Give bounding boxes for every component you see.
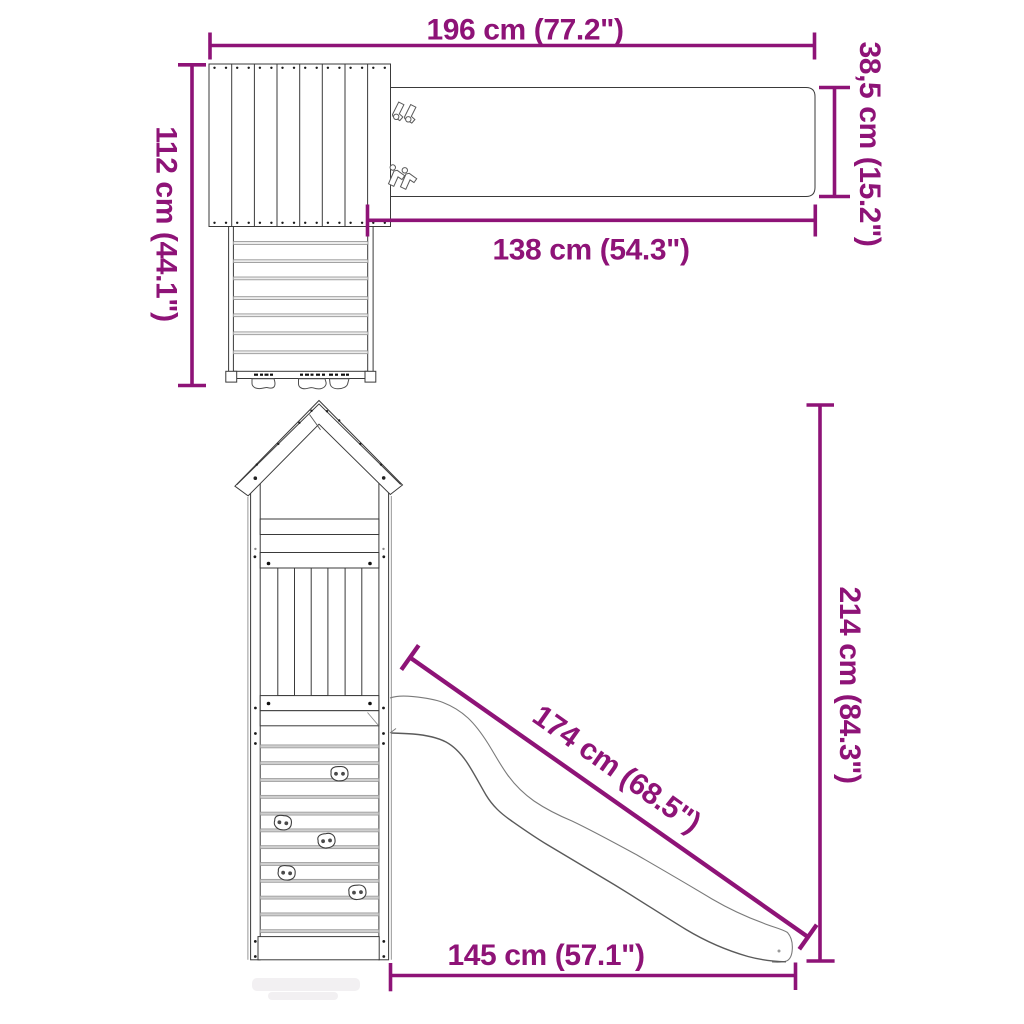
- svg-text:38,5 cm (15.2"): 38,5 cm (15.2"): [853, 41, 886, 246]
- svg-text:196 cm (77.2"): 196 cm (77.2"): [426, 14, 623, 47]
- svg-text:145 cm (57.1"): 145 cm (57.1"): [447, 939, 644, 972]
- svg-text:138 cm (54.3"): 138 cm (54.3"): [492, 234, 689, 267]
- svg-text:214 cm (84.3"): 214 cm (84.3"): [833, 586, 866, 783]
- svg-text:112 cm (44.1"): 112 cm (44.1"): [150, 126, 183, 321]
